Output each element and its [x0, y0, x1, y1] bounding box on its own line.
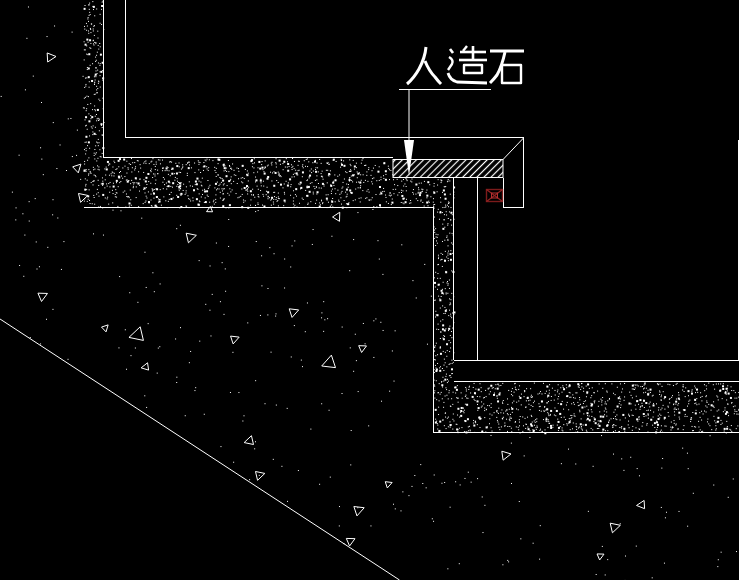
structure-lines	[84, 0, 739, 433]
stair-soffit-line	[0, 319, 400, 580]
nosing-chamfer-line	[503, 138, 524, 160]
box-x-marker-icon	[487, 190, 503, 202]
cad-detail-drawing: 人造石	[0, 0, 739, 580]
label-glyph-strokes	[407, 46, 524, 84]
linework-layer	[0, 0, 739, 580]
